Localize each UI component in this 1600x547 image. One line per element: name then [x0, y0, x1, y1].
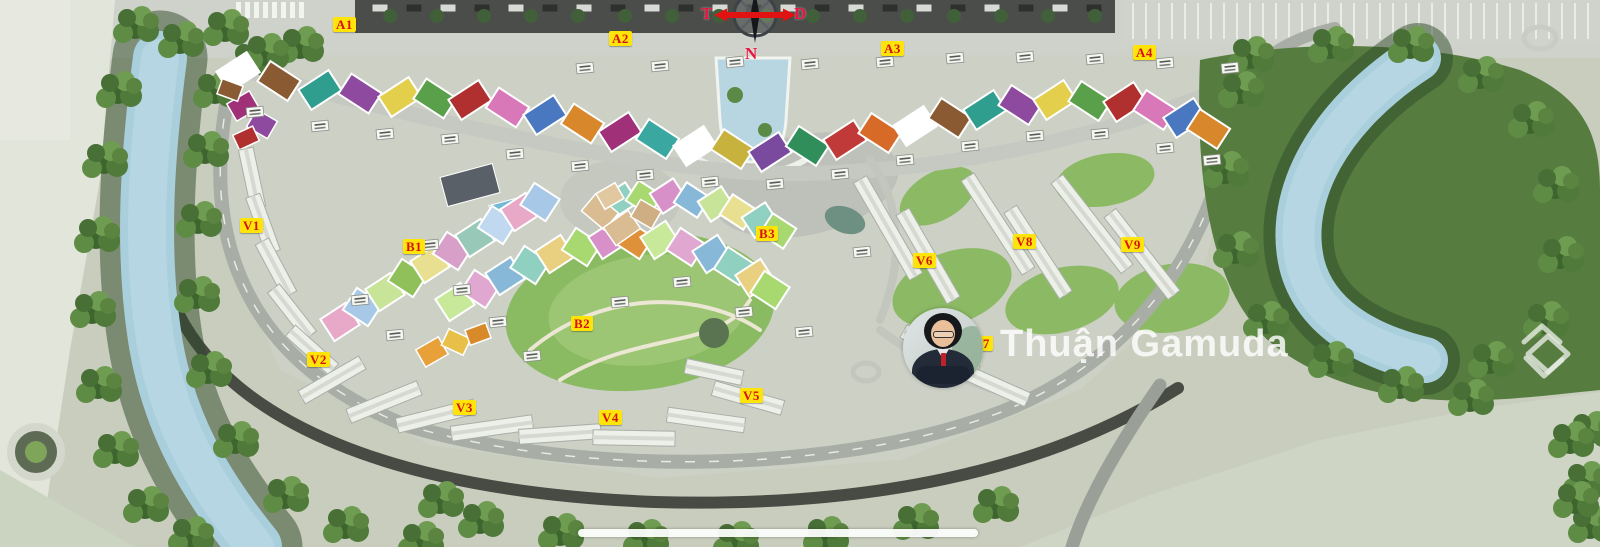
- zone-label-v9: V9: [1121, 237, 1144, 252]
- avatar-glasses: [933, 331, 954, 338]
- zone-label-v6: V6: [913, 253, 936, 268]
- home-indicator[interactable]: [578, 529, 978, 537]
- zone-label-b3: B3: [756, 226, 778, 241]
- compass-letter-east: D: [794, 4, 806, 24]
- compass-letter-south: N: [745, 44, 757, 64]
- zone-label-a4: A4: [1133, 45, 1156, 60]
- site-plan-artwork: [0, 0, 1600, 547]
- zone-label-b2: B2: [571, 316, 593, 331]
- brand-logo-icon: [1516, 316, 1576, 384]
- zone-label-a1: A1: [333, 17, 356, 32]
- avatar-arms: [916, 366, 970, 384]
- zone-label-v3: V3: [453, 400, 476, 415]
- compass-letter-west: T: [701, 4, 712, 24]
- zone-label-v2: V2: [307, 352, 330, 367]
- zone-label-v4: V4: [599, 410, 622, 425]
- masterplan-screenshot: T D N A1A2A3A4B1B2B3V1V2V3V4V5V6V7V8V9 T…: [0, 0, 1600, 547]
- zone-label-v5: V5: [740, 388, 763, 403]
- zone-label-v1: V1: [240, 218, 263, 233]
- avatar: [903, 308, 983, 388]
- zone-label-a2: A2: [609, 31, 632, 46]
- zone-label-b1: B1: [403, 239, 425, 254]
- zone-label-v8: V8: [1013, 234, 1036, 249]
- zone-label-a3: A3: [881, 41, 904, 56]
- watermark-text: Thuận Gamuda: [1000, 323, 1289, 366]
